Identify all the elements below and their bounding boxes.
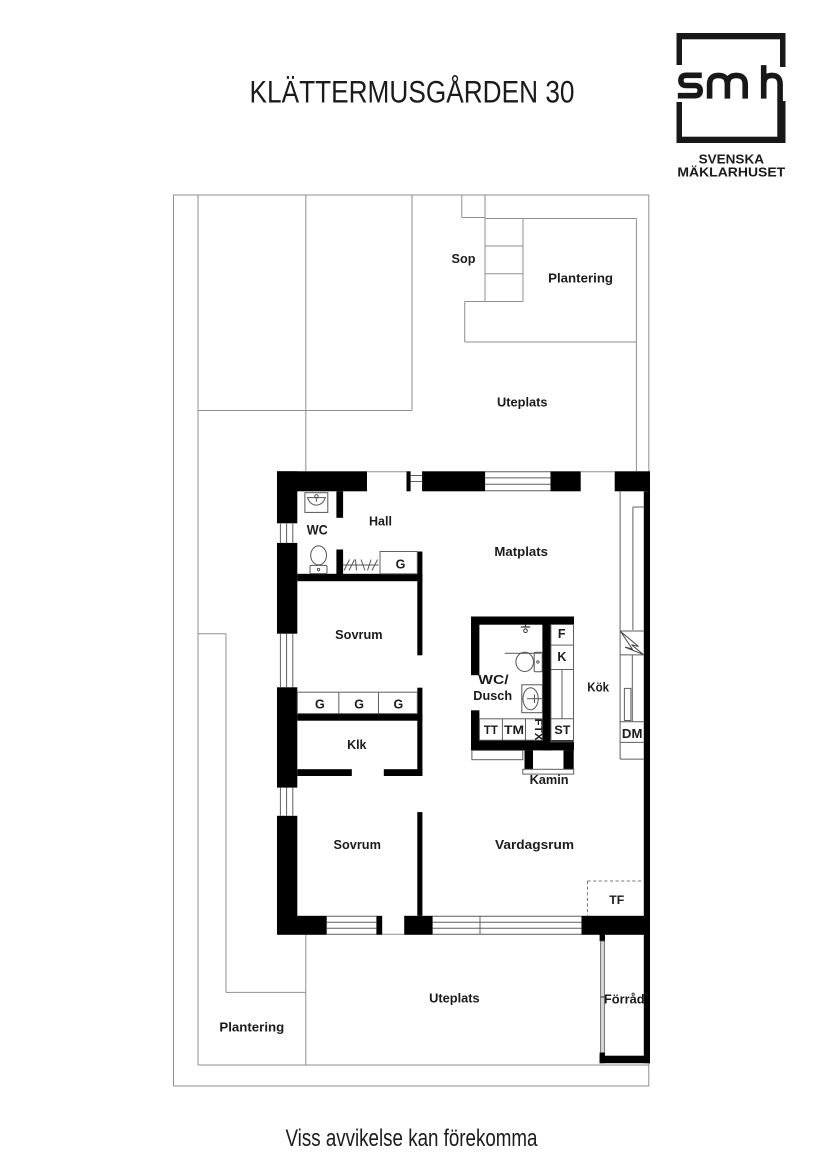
svg-text:Sovrum: Sovrum [334, 838, 381, 852]
svg-text:Uteplats: Uteplats [429, 992, 480, 1006]
svg-text:Matplats: Matplats [494, 545, 548, 559]
svg-text:K: K [557, 650, 566, 664]
svg-text:MÄKLARHUSET: MÄKLARHUSET [677, 165, 785, 180]
svg-text:F: F [558, 627, 566, 641]
svg-text:FTX: FTX [532, 719, 544, 742]
svg-text:G: G [354, 697, 364, 711]
svg-text:Hall: Hall [369, 515, 392, 529]
svg-text:Uteplats: Uteplats [497, 395, 548, 409]
svg-text:Sop: Sop [452, 252, 476, 266]
svg-text:Kök: Kök [587, 680, 609, 694]
svg-text:Viss avvikelse kan förekomma: Viss avvikelse kan förekomma [286, 1125, 538, 1152]
svg-text:Sovrum: Sovrum [335, 628, 382, 642]
svg-text:TM: TM [504, 723, 524, 737]
svg-text:TT: TT [484, 723, 499, 737]
svg-text:DM: DM [622, 727, 643, 741]
svg-text:Klk: Klk [347, 738, 366, 752]
svg-text:TF: TF [609, 893, 624, 907]
svg-text:SVENSKA: SVENSKA [699, 152, 764, 166]
svg-text:Kamin: Kamin [530, 773, 569, 787]
svg-text:Vardagsrum: Vardagsrum [495, 838, 574, 852]
svg-text:WC: WC [307, 522, 328, 537]
svg-text:G: G [396, 557, 406, 571]
svg-text:Dusch: Dusch [473, 689, 512, 703]
svg-text:WC/: WC/ [478, 673, 509, 687]
svg-text:G: G [394, 697, 404, 711]
svg-text:Förråd: Förråd [604, 993, 645, 1007]
svg-text:Plantering: Plantering [219, 1021, 284, 1035]
svg-text:ST: ST [554, 723, 571, 737]
svg-text:Plantering: Plantering [548, 272, 613, 286]
svg-text:G: G [315, 697, 325, 711]
svg-text:KLÄTTERMUSGÅRDEN 30: KLÄTTERMUSGÅRDEN 30 [250, 74, 575, 110]
